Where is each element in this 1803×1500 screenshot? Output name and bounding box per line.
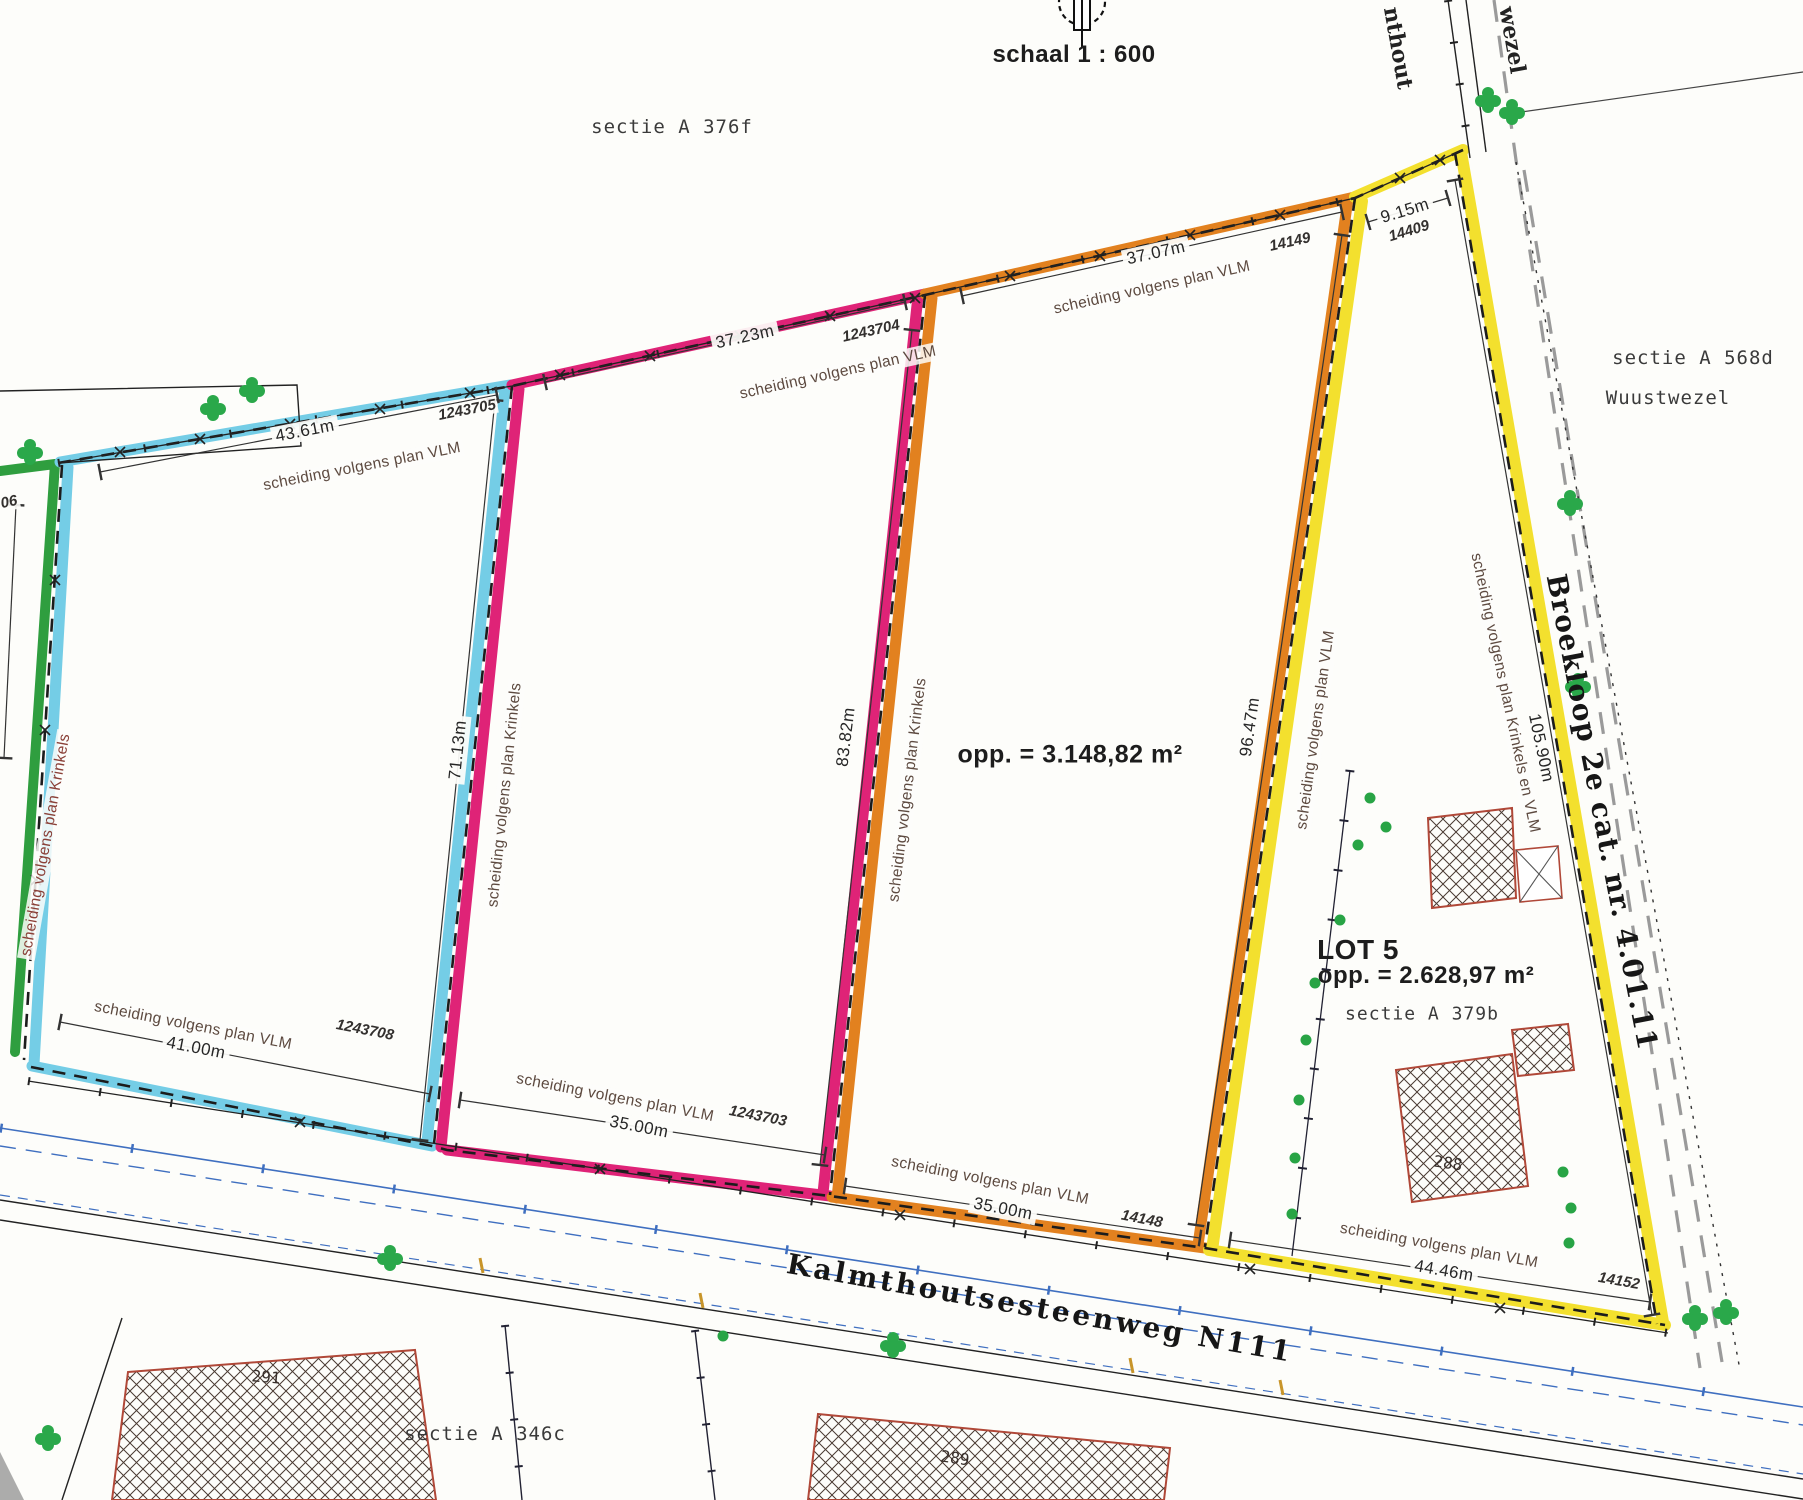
building-number-288: 288 (1432, 1152, 1463, 1175)
section-label-346c: sectie A 346c (404, 1423, 566, 1445)
scan-artifact (0, 1452, 24, 1500)
building-number-291: 291 (251, 1366, 281, 1387)
area-label-middle-lot: opp. = 3.148,82 m² (957, 741, 1182, 770)
scale-label: schaal 1 : 600 (992, 41, 1155, 69)
lot5-area: opp. = 2.628,97 m² (1318, 962, 1534, 990)
building-number-289: 289 (939, 1447, 970, 1470)
building-upper (1428, 808, 1516, 908)
section-label-379b: sectie A 379b (1345, 1004, 1499, 1025)
section-label-376f: sectie A 376f (591, 116, 753, 138)
town-label-wuustwezel: Wuustwezel (1606, 387, 1730, 409)
cadastral-plan: schaal 1 : 600 sectie A 376f sectie A 56… (0, 0, 1803, 1500)
building-288-ext (1512, 1024, 1574, 1076)
building-289 (808, 1414, 1170, 1500)
building-288-main (1396, 1054, 1528, 1202)
section-label-568d: sectie A 568d (1612, 347, 1774, 369)
